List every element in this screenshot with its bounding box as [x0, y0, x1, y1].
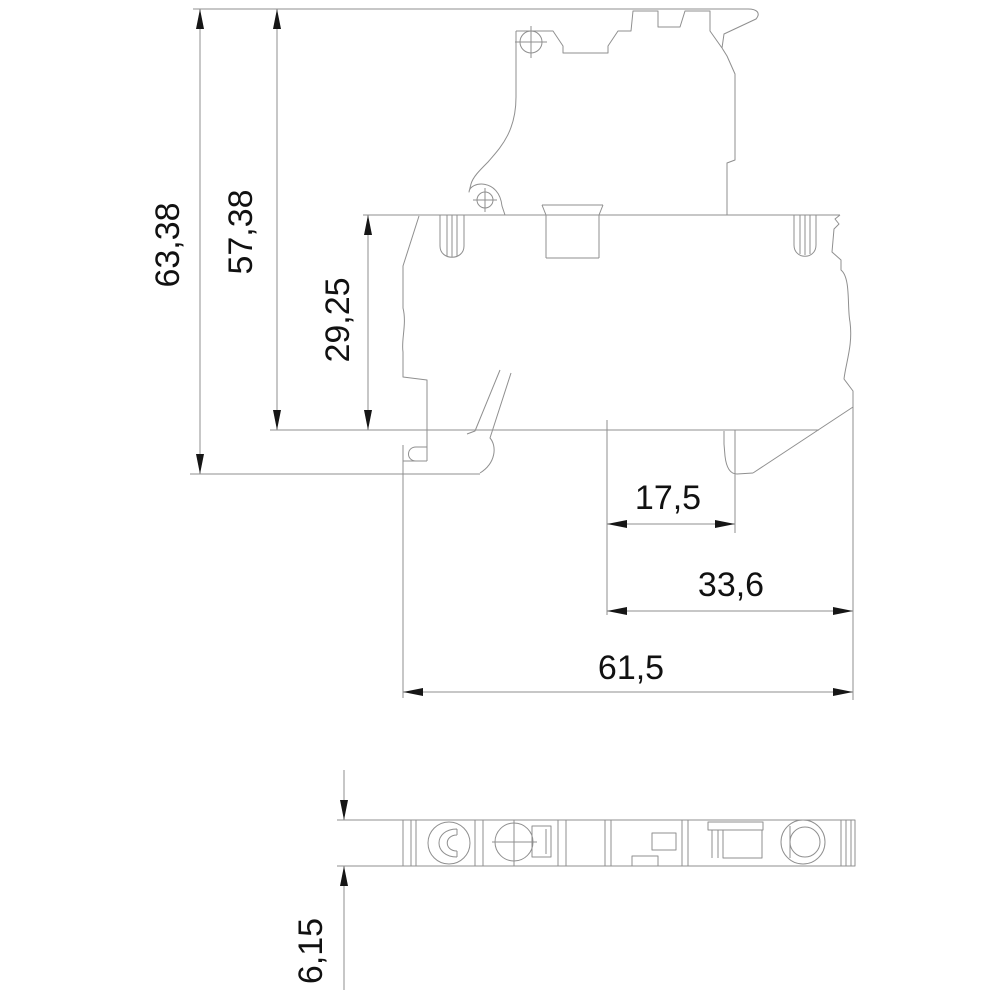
- arrowhead-right-icon: [833, 688, 853, 696]
- drawing-page: 63,38 57,38 29,25 17,5 33,6: [0, 0, 1000, 1000]
- arrowhead-left-icon: [403, 688, 423, 696]
- arrowhead-down-icon: [196, 454, 204, 474]
- arrowhead-up-icon: [364, 215, 372, 235]
- arrowhead-left-icon: [607, 607, 627, 615]
- arrowhead-right-icon: [833, 607, 853, 615]
- rail-hook: [724, 431, 753, 474]
- arrowhead-up-icon: [340, 866, 348, 886]
- marker-slot: [542, 205, 603, 258]
- terminal-barrel: [781, 820, 825, 864]
- dim-overall-height: 63,38: [149, 9, 204, 474]
- clamp-horseshoe: [439, 829, 457, 857]
- clamp-tab-left: [440, 215, 464, 257]
- rail-jaw: [403, 447, 427, 461]
- dim-module-width-label: 6,15: [292, 918, 330, 984]
- bottom-view: [403, 820, 855, 866]
- arrowhead-up-icon: [273, 9, 281, 29]
- dim-hook-offset: 17,5: [607, 479, 735, 528]
- dim-rear-depth: 33,6: [607, 566, 853, 615]
- stepped-block: [708, 822, 763, 858]
- dim-hook-offset-label: 17,5: [635, 479, 701, 517]
- lever-tip: [722, 9, 758, 215]
- arrowhead-right-icon: [715, 520, 735, 528]
- side-view: [190, 9, 853, 474]
- technical-drawing-canvas: 63,38 57,38 29,25 17,5 33,6: [0, 0, 1000, 1000]
- arrowhead-down-icon: [340, 800, 348, 820]
- upper-body-top-edge: [516, 11, 722, 53]
- dim-overall-depth-label: 61,5: [598, 649, 664, 687]
- dim-module-width: 6,15: [292, 770, 348, 990]
- dim-body-height-label: 29,25: [319, 277, 357, 362]
- lower-body-right-edge: [753, 215, 853, 473]
- arrowhead-left-icon: [607, 520, 627, 528]
- pivot-crosshair-icon: [473, 188, 497, 212]
- lower-body-left-edge: [403, 216, 427, 461]
- bottom-view-partitions: [411, 820, 851, 866]
- dim-overall-height-label: 63,38: [149, 202, 187, 287]
- clamp-tab-right: [794, 215, 816, 256]
- center-window: [652, 833, 676, 850]
- dim-rear-depth-label: 33,6: [698, 566, 764, 604]
- upper-body-left-edge: [469, 31, 516, 215]
- screw-crosshair-icon: [492, 820, 537, 866]
- dim-body-height: 29,25: [319, 215, 372, 430]
- dimensions: 63,38 57,38 29,25 17,5 33,6: [149, 9, 853, 990]
- arrowhead-down-icon: [364, 410, 372, 430]
- dim-upper-height-label: 57,38: [222, 189, 260, 274]
- arrowhead-up-icon: [196, 9, 204, 29]
- bottom-notch: [632, 856, 658, 866]
- release-lever: [467, 370, 511, 473]
- dim-upper-height: 57,38: [222, 9, 281, 430]
- dim-overall-depth: 61,5: [403, 649, 853, 696]
- clamp-ring: [428, 822, 470, 864]
- arrowhead-down-icon: [273, 410, 281, 430]
